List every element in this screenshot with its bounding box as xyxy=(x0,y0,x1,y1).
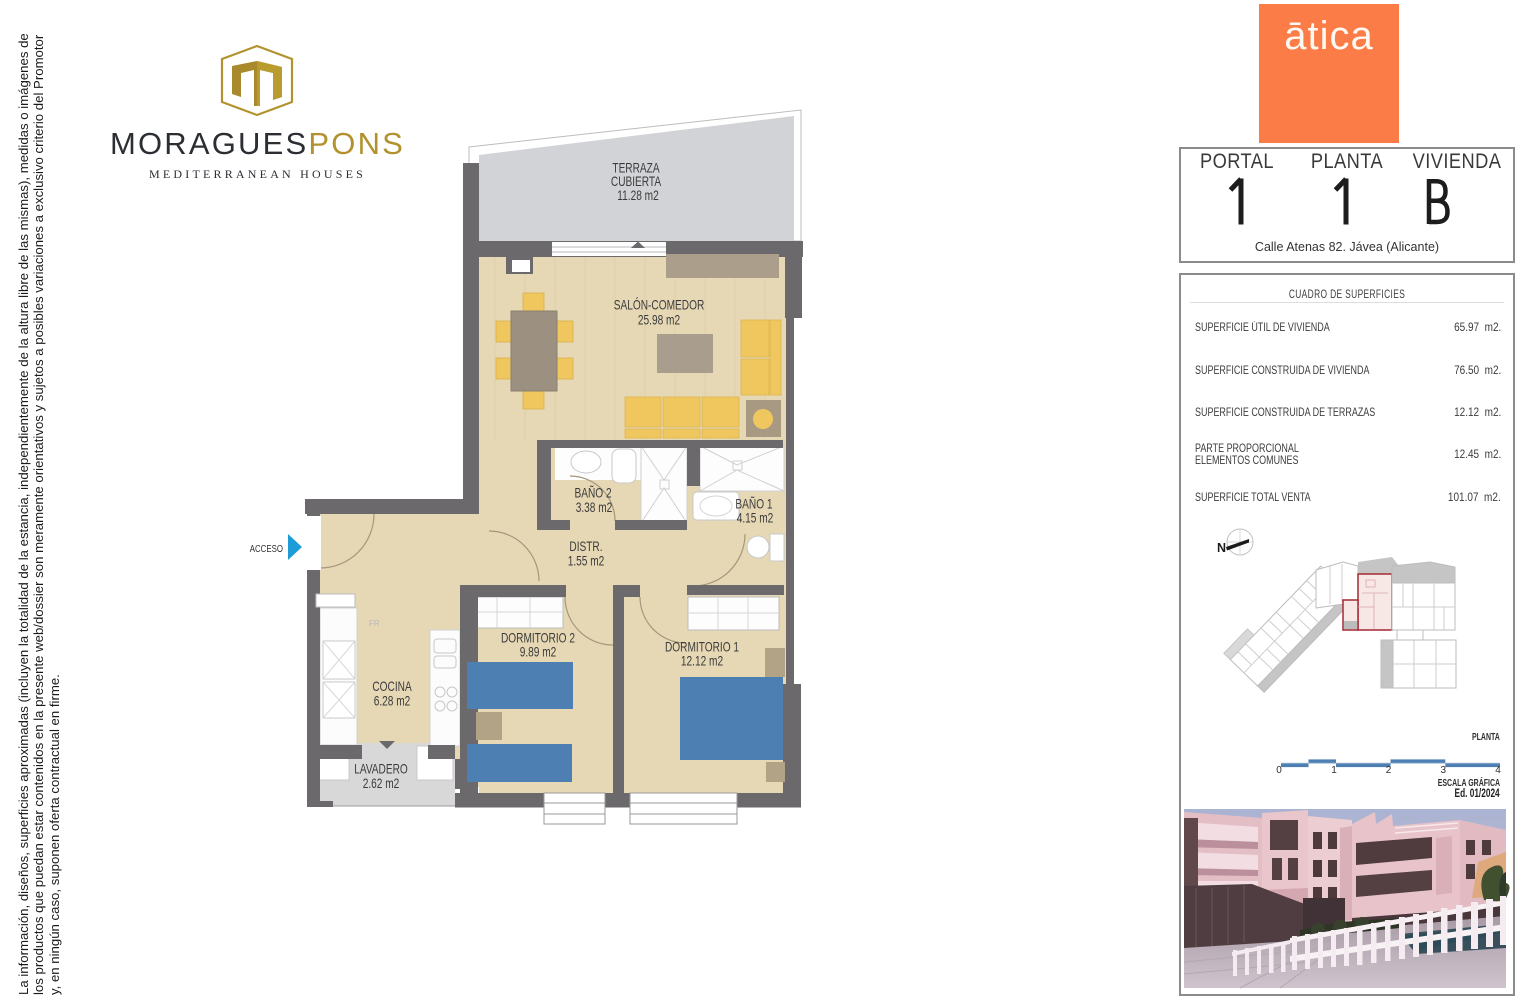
svg-text:1: 1 xyxy=(1331,765,1337,776)
svg-text:DISTR.: DISTR. xyxy=(569,539,602,555)
svg-text:SALÓN-COMEDOR: SALÓN-COMEDOR xyxy=(614,296,705,313)
svg-text:3.38 m2: 3.38 m2 xyxy=(576,500,613,516)
svg-text:N: N xyxy=(1217,541,1226,555)
svg-text:4.15 m2: 4.15 m2 xyxy=(737,510,774,526)
svg-text:COCINA: COCINA xyxy=(372,679,411,695)
svg-text:25.98 m2: 25.98 m2 xyxy=(638,312,680,328)
svg-text:6.28 m2: 6.28 m2 xyxy=(374,693,411,709)
svg-text:FR: FR xyxy=(369,619,380,628)
svg-text:LAVADERO: LAVADERO xyxy=(354,761,408,777)
svg-text:3: 3 xyxy=(1441,765,1447,776)
svg-text:2.62 m2: 2.62 m2 xyxy=(363,776,400,792)
svg-text:2: 2 xyxy=(1386,765,1392,776)
svg-text:11.28 m2: 11.28 m2 xyxy=(617,188,659,204)
svg-text:12.12 m2: 12.12 m2 xyxy=(681,653,723,669)
svg-text:0: 0 xyxy=(1276,765,1282,776)
svg-text:BAÑO 2: BAÑO 2 xyxy=(574,485,611,501)
svg-text:1.55 m2: 1.55 m2 xyxy=(568,553,605,569)
svg-text:ACCESO: ACCESO xyxy=(250,543,283,554)
svg-text:9.89 m2: 9.89 m2 xyxy=(520,644,557,660)
svg-text:4: 4 xyxy=(1495,765,1501,776)
